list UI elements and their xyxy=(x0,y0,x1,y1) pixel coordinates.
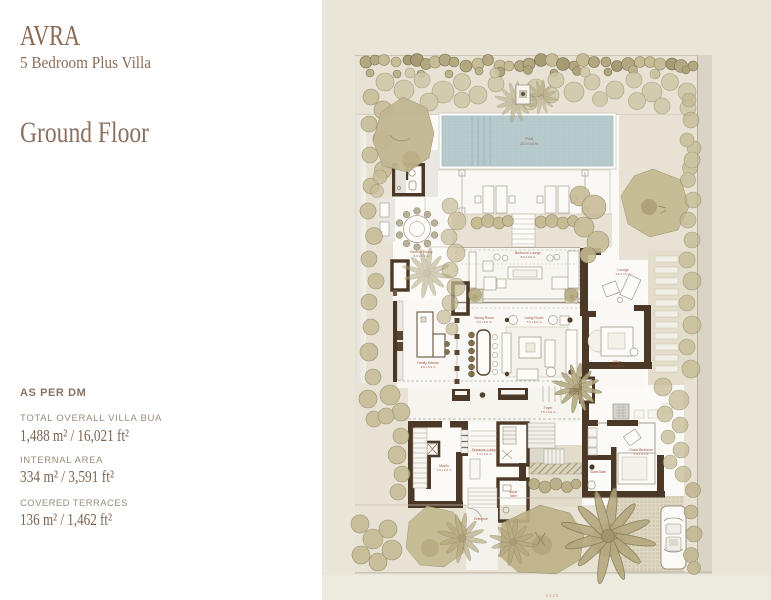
svg-text:Guest Bath: Guest Bath xyxy=(590,470,606,474)
svg-text:4.6 x 4.1 m: 4.6 x 4.1 m xyxy=(634,452,649,456)
svg-text:COVERED TERRACES: COVERED TERRACES xyxy=(20,498,129,509)
svg-text:0 1 2 5: 0 1 2 5 xyxy=(546,593,559,598)
svg-text:7.5 x 6.6 m: 7.5 x 6.6 m xyxy=(527,320,542,324)
svg-text:TOTAL OVERALL VILLA BUA: TOTAL OVERALL VILLA BUA xyxy=(20,413,163,424)
svg-text:INTERNAL AREA: INTERNAL AREA xyxy=(20,455,104,466)
svg-text:136 m² / 1,462 ft²: 136 m² / 1,462 ft² xyxy=(20,510,112,529)
svg-text:Ground Floor: Ground Floor xyxy=(20,116,149,149)
svg-text:5 Bedroom Plus Villa: 5 Bedroom Plus Villa xyxy=(20,53,151,72)
svg-text:4.5 x 6.6 m: 4.5 x 6.6 m xyxy=(477,320,492,324)
svg-text:Pool: Pool xyxy=(525,137,532,141)
svg-text:7.5 x 4.6 m: 7.5 x 4.6 m xyxy=(541,410,556,414)
svg-text:Toilet: Toilet xyxy=(509,494,517,498)
svg-text:AVRA: AVRA xyxy=(20,20,80,52)
svg-text:8.9 x 4.6 m: 8.9 x 4.6 m xyxy=(521,255,536,259)
svg-text:1,488 m² / 16,021 ft²: 1,488 m² / 16,021 ft² xyxy=(20,426,129,445)
svg-text:4.5 x 5.3 m: 4.5 x 5.3 m xyxy=(421,365,436,369)
svg-text:AS PER DM: AS PER DM xyxy=(20,387,88,399)
svg-text:3.3 x 6.2 m: 3.3 x 6.2 m xyxy=(477,452,492,456)
svg-text:4.6 x 4.6 m: 4.6 x 4.6 m xyxy=(610,364,625,368)
svg-text:334 m² / 3,591 ft²: 334 m² / 3,591 ft² xyxy=(20,467,114,486)
svg-text:4.6 x 4.6 m: 4.6 x 4.6 m xyxy=(616,272,631,276)
svg-text:21.0 x 4.0 m: 21.0 x 4.0 m xyxy=(520,142,538,146)
svg-text:3.0 x 4.2 m: 3.0 x 4.2 m xyxy=(437,468,452,472)
